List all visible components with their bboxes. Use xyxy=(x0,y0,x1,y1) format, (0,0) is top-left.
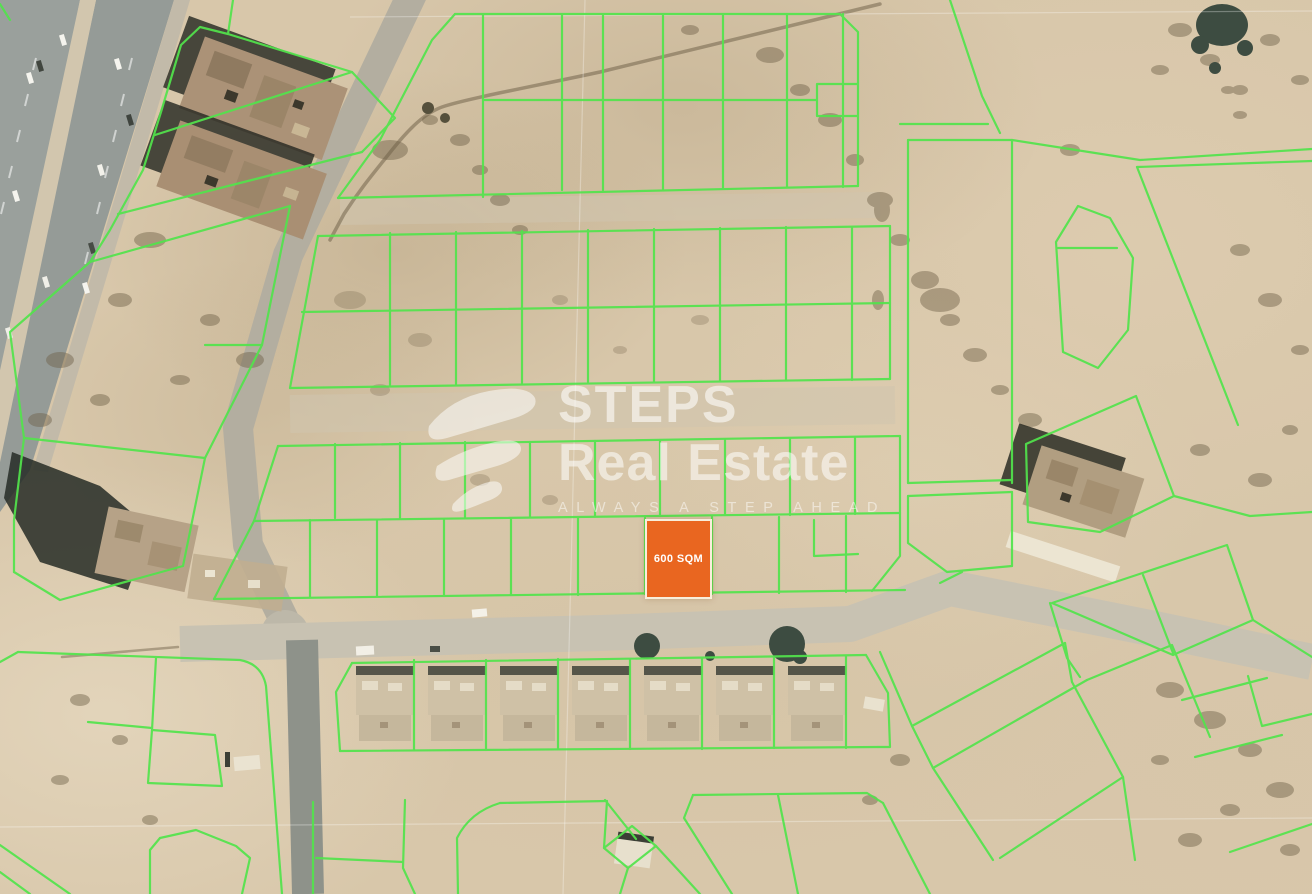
satellite-map: 600 SQM STEPS Real Estate ALWAYS A STEP … xyxy=(0,0,1312,894)
villa-row xyxy=(356,666,846,741)
plot-block-central-row1 xyxy=(338,14,858,198)
highlighted-plot-label: 600 SQM xyxy=(654,553,703,565)
plot-block-central-row4 xyxy=(214,513,905,599)
villa xyxy=(644,666,702,741)
plot-block-central-row2 xyxy=(290,226,890,388)
villa xyxy=(356,666,414,741)
villa xyxy=(428,666,486,741)
villa xyxy=(716,666,774,741)
plot-block-central-row3 xyxy=(254,436,900,521)
highlighted-plot: 600 SQM xyxy=(645,519,712,599)
plot-blocks-bottomcenter xyxy=(457,793,930,894)
plot-blocks-bottomleft xyxy=(0,652,415,894)
road-central xyxy=(180,588,1312,662)
trees xyxy=(422,4,1253,664)
road-south xyxy=(302,640,308,894)
map-layers xyxy=(0,0,1312,894)
villa xyxy=(572,666,630,741)
villa xyxy=(788,666,846,741)
building-rightmiddle xyxy=(996,423,1149,582)
villa xyxy=(500,666,558,741)
